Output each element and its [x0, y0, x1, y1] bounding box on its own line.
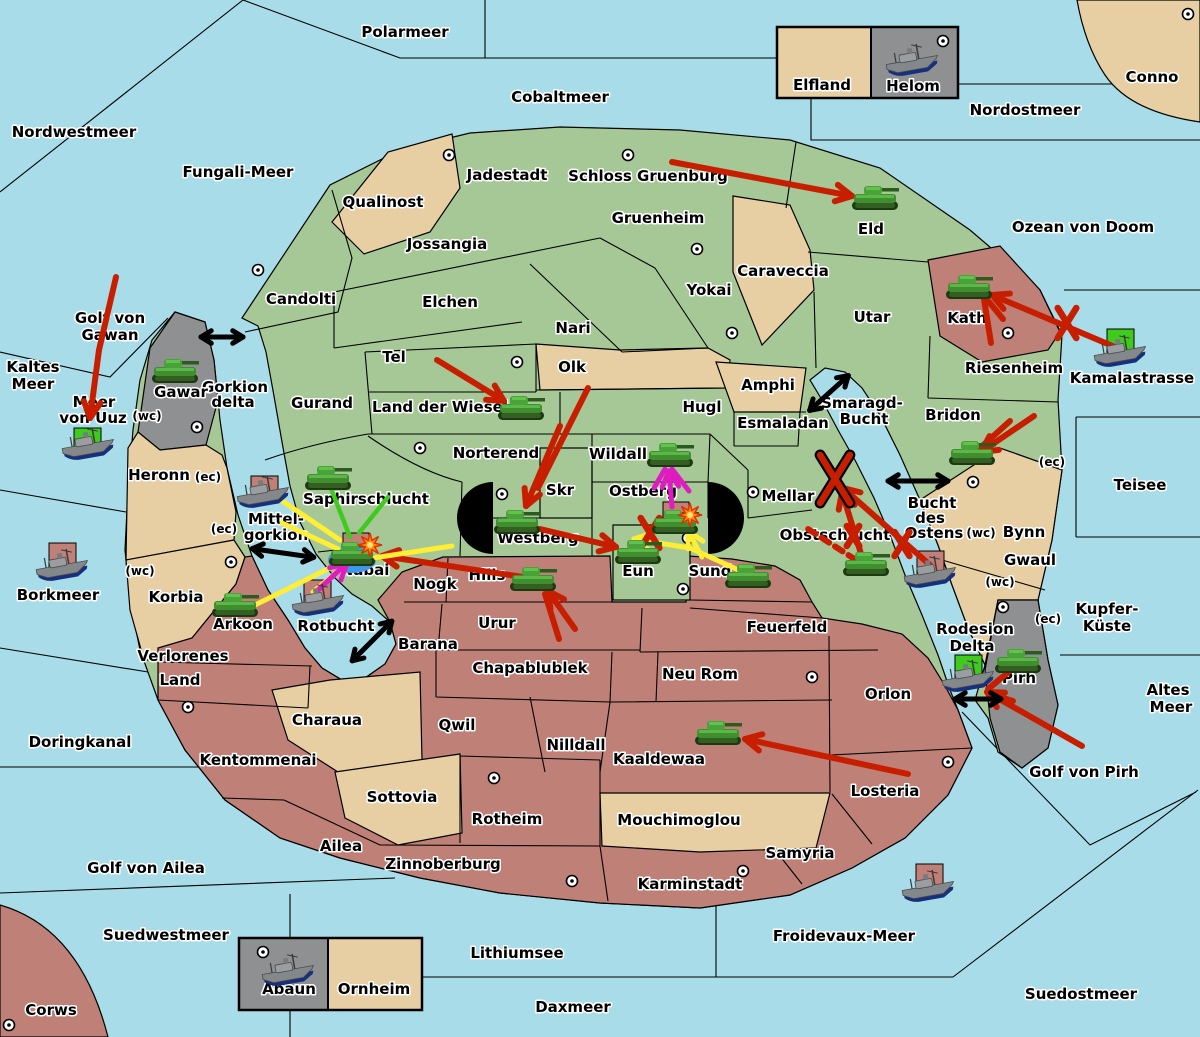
- map-label: Candolti: [266, 290, 336, 308]
- supply-center-core: [946, 760, 950, 764]
- map-label: Esmaladan: [737, 414, 829, 432]
- supply-center-dot: [807, 672, 818, 683]
- map-label: Verlorenes: [137, 647, 228, 665]
- map-label: Conno: [1126, 68, 1179, 86]
- supply-center-core: [730, 331, 734, 335]
- supply-center-core: [1186, 12, 1190, 16]
- map-label: Teisee: [1114, 476, 1167, 494]
- map-label: Corws: [25, 1001, 77, 1019]
- map-label: Suedwestmeer: [103, 926, 229, 944]
- arrowhead: [525, 488, 526, 506]
- map-label: Bynn: [1003, 523, 1046, 541]
- map-label: Ornheim: [338, 980, 410, 998]
- map-label: Mellar: [762, 487, 816, 505]
- supply-center-core: [186, 705, 190, 709]
- supply-center-dot: [943, 757, 954, 768]
- supply-center-dot: [1003, 328, 1014, 339]
- map-label: Bucht: [840, 410, 889, 428]
- map-label: Golf von Pirh: [1029, 763, 1139, 781]
- supply-center-dot: [258, 947, 269, 958]
- supply-center-core: [1006, 331, 1010, 335]
- map-label: (ec): [1039, 455, 1065, 469]
- map-label: (wc): [985, 575, 1014, 589]
- map-label: Nilldall: [546, 736, 605, 754]
- map-label: Wildall: [589, 445, 647, 463]
- supply-center-dot: [489, 773, 500, 784]
- map-label: Mouchimoglou: [617, 811, 740, 829]
- map-label: Arkoon: [213, 615, 273, 633]
- map-label: Doringkanal: [29, 733, 132, 751]
- map-label: Hugl: [682, 398, 721, 416]
- map-label: Elchen: [422, 293, 478, 311]
- map-label: Meer: [12, 375, 55, 393]
- map-label: Froidevaux-Meer: [773, 927, 916, 945]
- map-label: Kaaldewaa: [613, 750, 705, 768]
- map-label: Delta: [949, 637, 994, 655]
- supply-center-core: [256, 268, 260, 272]
- explosion-core: [687, 512, 693, 518]
- map-label: Eun: [622, 562, 654, 580]
- supply-center-core: [447, 153, 451, 157]
- map-label: Borkmeer: [17, 586, 100, 604]
- game-map[interactable]: PolarmeerCobaltmeerNordostmeerConnoOzean…: [0, 0, 1200, 1037]
- supply-center-core: [500, 492, 504, 496]
- supply-center-dot: [192, 422, 203, 433]
- map-label: Rotbucht: [297, 617, 374, 635]
- supply-center-dot: [183, 702, 194, 713]
- map-label: Nogk: [413, 575, 458, 593]
- map-label: Land: [159, 671, 200, 689]
- supply-center-dot: [567, 876, 578, 887]
- map-label: Kaltes: [6, 358, 59, 376]
- map-label: Elfland: [793, 76, 851, 94]
- supply-center-dot: [968, 477, 979, 488]
- supply-center-core: [570, 879, 574, 883]
- supply-center-core: [515, 360, 519, 364]
- map-label: Gurand: [291, 394, 353, 412]
- map-label: Chapablublek: [472, 659, 588, 677]
- map-label: Samyria: [766, 844, 835, 862]
- map-label: Heronn: [128, 466, 190, 484]
- map-label: Korbia: [148, 588, 203, 606]
- map-label: Nari: [555, 319, 590, 337]
- map-label: Barana: [398, 635, 458, 653]
- map-label: (ec): [195, 470, 221, 484]
- supply-center-core: [741, 869, 745, 873]
- supply-center-dot: [678, 584, 689, 595]
- map-label: Meer: [1150, 698, 1193, 716]
- map-label: Kentommenai: [199, 751, 316, 769]
- map-label: Qwil: [439, 716, 476, 734]
- supply-center-dot: [4, 1020, 15, 1031]
- arrowhead: [486, 400, 504, 401]
- map-label: Caraveccia: [737, 262, 829, 280]
- map-label: Qualinost: [343, 193, 424, 211]
- map-label: Cobaltmeer: [511, 88, 609, 106]
- map-label: Olk: [558, 358, 587, 376]
- supply-center-core: [751, 490, 755, 494]
- map-label: Helom: [886, 77, 940, 95]
- map-label: Gwaul: [1004, 551, 1056, 569]
- map-label: Karminstadt: [638, 875, 743, 893]
- map-label: Tel: [382, 348, 406, 366]
- map-label: (wc): [132, 409, 161, 423]
- map-label: Ostens: [905, 524, 964, 542]
- map-label: delta: [211, 393, 254, 411]
- map-label: Norterend: [453, 444, 540, 462]
- map-label: Rodesion: [936, 620, 1014, 638]
- supply-center-dot: [727, 328, 738, 339]
- supply-center-core: [418, 446, 422, 450]
- map-label: Bridon: [925, 406, 981, 424]
- map-label: Obstschlucht: [780, 526, 891, 544]
- map-label: Eld: [858, 220, 884, 238]
- map-label: Zinnoberburg: [385, 855, 501, 873]
- supply-center-core: [626, 153, 630, 157]
- map-label: Nordostmeer: [970, 101, 1081, 119]
- map-label: Amphi: [741, 376, 795, 394]
- supply-center-dot: [253, 265, 264, 276]
- supply-center-dot: [226, 557, 237, 568]
- map-label: Gawan: [81, 326, 138, 344]
- supply-center-core: [7, 1023, 11, 1027]
- supply-center-core: [971, 480, 975, 484]
- map-label: Orlon: [865, 685, 911, 703]
- supply-center-dot: [512, 357, 523, 368]
- map-label: Gruenheim: [612, 209, 705, 227]
- map-label: Suedostmeer: [1025, 985, 1138, 1003]
- legend-cell[interactable]: [328, 938, 422, 1010]
- supply-center-dot: [497, 489, 508, 500]
- map-label: (ec): [211, 522, 237, 536]
- supply-center-core: [681, 587, 685, 591]
- map-label: Ostberg: [609, 482, 677, 500]
- map-label: Saphirschlucht: [303, 490, 429, 508]
- supply-center-core: [695, 247, 699, 251]
- supply-center-dot: [748, 487, 759, 498]
- supply-center-core: [229, 560, 233, 564]
- map-label: Kupfer-: [1075, 600, 1138, 618]
- map-label: Ailea: [320, 837, 362, 855]
- supply-center-dot: [1183, 9, 1194, 20]
- explosion-core: [367, 542, 373, 548]
- map-label: Riesenheim: [965, 359, 1063, 377]
- map-label: Polarmeer: [361, 23, 449, 41]
- arrowhead: [992, 294, 1010, 295]
- map-label: Lithiumsee: [470, 944, 563, 962]
- map-label: (wc): [125, 564, 154, 578]
- map-label: Ozean von Doom: [1012, 218, 1154, 236]
- map-label: Urur: [478, 614, 516, 632]
- supply-center-dot: [623, 150, 634, 161]
- map-label: Fungali-Meer: [183, 163, 294, 181]
- map-label: Gawar: [154, 383, 208, 401]
- supply-center-core: [941, 39, 945, 43]
- map-label: Utar: [854, 308, 891, 326]
- map-label: Losteria: [851, 782, 920, 800]
- map-label: (ec): [1035, 612, 1061, 626]
- map-label: Küste: [1083, 617, 1131, 635]
- arrowhead: [599, 547, 616, 551]
- supply-center-core: [1001, 605, 1005, 609]
- explosion-marker: [358, 533, 382, 557]
- map-label: Kamalastrasse: [1070, 369, 1194, 387]
- map-label: Altes: [1146, 681, 1189, 699]
- map-label: (wc): [966, 526, 995, 540]
- explosion-marker: [678, 503, 702, 527]
- map-label: Nordwestmeer: [12, 123, 137, 141]
- supply-center-dot: [692, 244, 703, 255]
- map-label: Jadestadt: [466, 166, 548, 184]
- map-label: Charaua: [292, 711, 362, 729]
- supply-center-core: [492, 776, 496, 780]
- supply-center-dot: [998, 602, 1009, 613]
- map-label: Yokai: [685, 281, 731, 299]
- supply-center-dot: [444, 150, 455, 161]
- map-label: Skr: [546, 481, 575, 499]
- supply-center-core: [810, 675, 814, 679]
- map-label: Neu Rom: [662, 665, 738, 683]
- map-label: Sottovia: [367, 788, 438, 806]
- supply-center-dot: [938, 36, 949, 47]
- game-map-stage: PolarmeerCobaltmeerNordostmeerConnoOzean…: [0, 0, 1200, 1037]
- map-label: Jossangia: [406, 235, 488, 253]
- map-label: Kath: [947, 309, 987, 327]
- map-label: Golf von Ailea: [87, 859, 205, 877]
- map-label: Daxmeer: [535, 998, 611, 1016]
- map-label: Feuerfeld: [747, 618, 828, 636]
- supply-center-dot: [415, 443, 426, 454]
- supply-center-core: [261, 950, 265, 954]
- supply-center-core: [195, 425, 199, 429]
- map-label: Rotheim: [472, 810, 543, 828]
